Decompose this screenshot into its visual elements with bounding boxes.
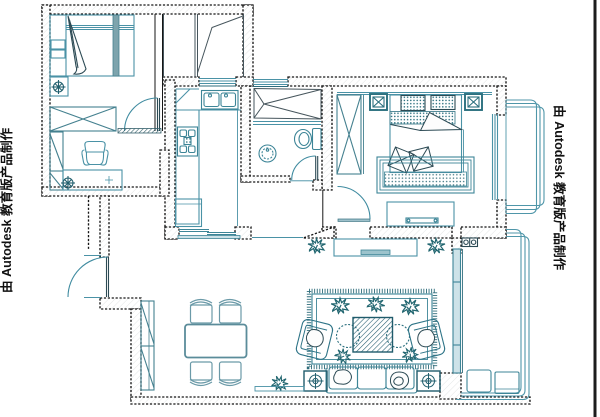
svg-text:由 Autodesk 教育版产品制作: 由 Autodesk 教育版产品制作 [552, 105, 567, 271]
svg-text:由 Autodesk 教育版产品制作: 由 Autodesk 教育版产品制作 [0, 127, 14, 293]
